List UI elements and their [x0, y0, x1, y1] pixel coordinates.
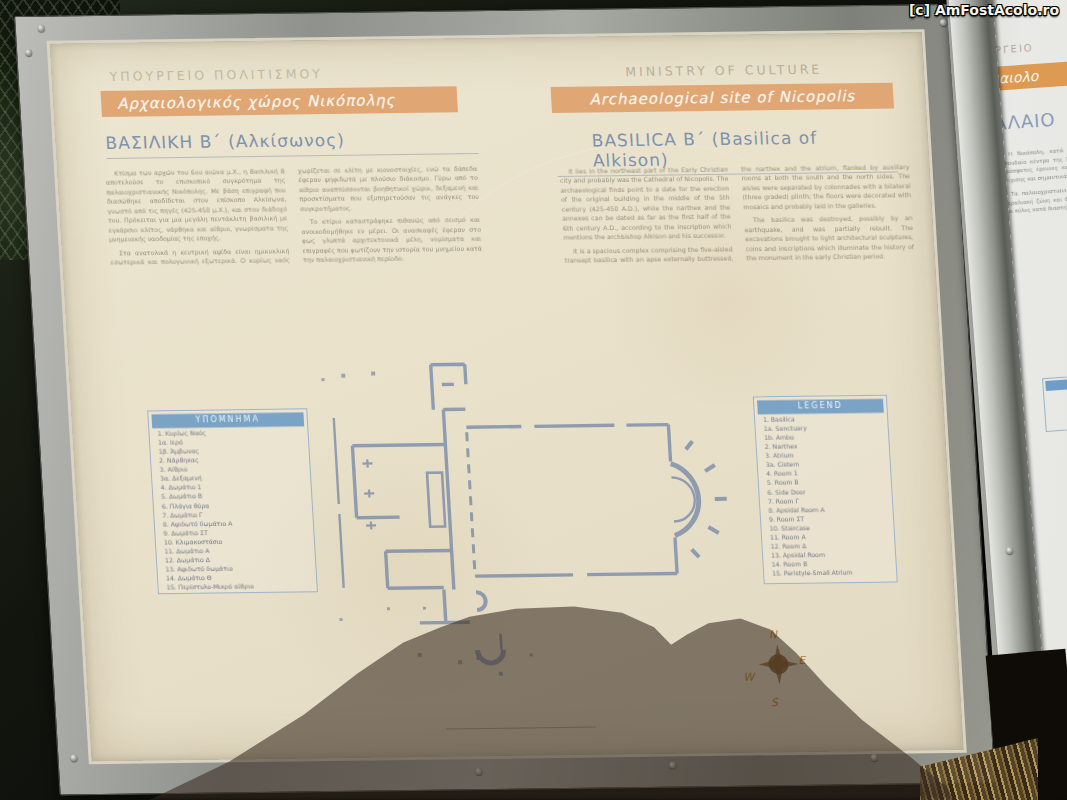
english-legend-header: LEGEND: [757, 399, 884, 415]
side-mini-legend-box: [1042, 371, 1067, 432]
frame-rivet: [25, 49, 32, 56]
english-ministry-heading: MINISTRY OF CULTURE: [551, 61, 896, 80]
side-title-fragment: ΑΛΑΙΟ: [993, 109, 1056, 134]
greek-legend-box: ΥΠΟΜΝΗΜΑ 1. Κυρίως Ναός1α. Ιερό1β. Άμβων…: [147, 408, 318, 594]
english-legend-list: 1. Basilica1a. Sanctuary1b. Ambo2. Narth…: [761, 415, 896, 578]
greek-body-text: Κτίσμα των αρχών του 6ου αιώνα μ.Χ., η Β…: [105, 164, 486, 323]
frame-rivet: [940, 19, 947, 26]
frame-rivet: [70, 754, 77, 761]
greek-site-banner: Αρχαιολογικός χώρος Νικόπολης: [100, 86, 457, 117]
english-body-text: It lies in the northeast part of the Ear…: [559, 162, 918, 320]
paragraph: Κτίσμα των αρχών του 6ου αιώνα μ.Χ., η Β…: [105, 167, 289, 245]
greek-legend-header: ΥΠΟΜΝΗΜΑ: [151, 412, 304, 428]
photo-scene: ΥΠΟΥΡΓΕΙΟ ΠΟΛΙΤΙΣΜΟΥ Αρχαιολογικός χώρος…: [0, 0, 1067, 800]
post-rivet: [1006, 547, 1014, 555]
english-site-banner: Archaeological site of Nicopolis: [551, 83, 894, 113]
greek-ministry-heading: ΥΠΟΥΡΓΕΙΟ ΠΟΛΙΤΙΣΜΟΥ: [109, 66, 323, 84]
paragraph: The basilica was destroyed, possibly by …: [744, 214, 915, 263]
paragraph: Η Νικόπολη, κατά τους αιώνες της ακμής τ…: [1000, 138, 1067, 185]
legend-item: 15. Peristyle-Small Atrium: [772, 567, 895, 578]
watermark: [c] AmFostAcolo.ro: [909, 2, 1059, 18]
legend-item: 15. Περίστυλο-Μικρό αίθριο: [166, 581, 315, 592]
paragraph: Το κτίριο καταστράφηκε πιθανώς από σεισμ…: [301, 215, 483, 265]
greek-legend-list: 1. Κυρίως Ναός1α. Ιερό1β. Άμβωνας2. Νάρθ…: [155, 428, 316, 592]
paragraph: It lies in the northeast part of the Ear…: [559, 165, 732, 243]
side-mini-legend-header: [1045, 375, 1067, 391]
greek-title: ΒΑΣΙΛΙΚΗ Β΄ (Αλκίσωνος): [105, 128, 478, 159]
english-legend-box: LEGEND 1. Basilica1a. Sanctuary1b. Ambo2…: [753, 395, 898, 585]
side-ministry-fragment: ΡΓΕΙΟ: [995, 42, 1034, 56]
side-body-text: Η Νικόπολη, κατά τους αιώνες της ακμής τ…: [1000, 138, 1067, 222]
frame-rivet: [38, 25, 45, 32]
